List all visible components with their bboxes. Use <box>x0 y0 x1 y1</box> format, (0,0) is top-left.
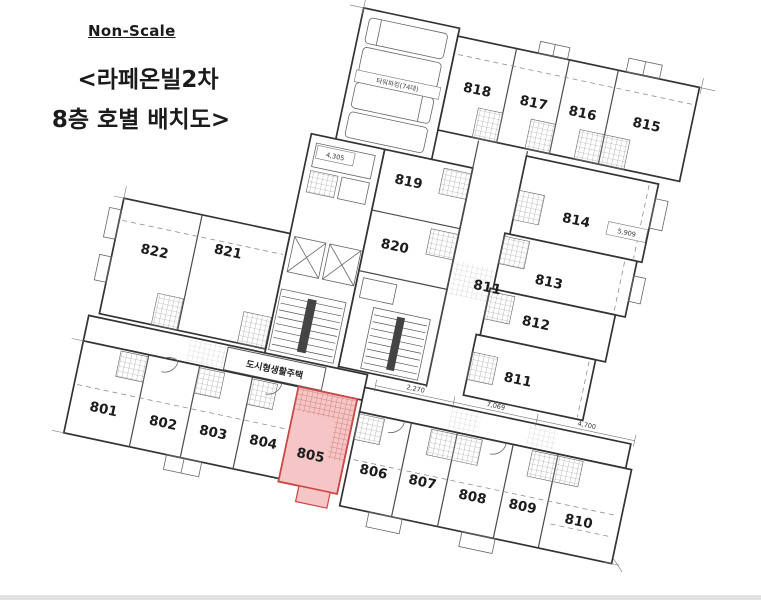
bathroom-tile <box>552 456 583 487</box>
bathroom-tile <box>194 368 225 399</box>
bathroom-tile <box>354 414 385 445</box>
bathroom-tile <box>499 236 530 269</box>
svg-text:4,700: 4,700 <box>577 420 597 432</box>
top-wing-units: 818 817 816 815 <box>438 22 702 181</box>
building-title: <라페온빌2차 <box>58 60 238 94</box>
bathroom-tile <box>467 352 498 385</box>
bathroom-tile <box>247 379 278 410</box>
non-scale-note: Non-Scale <box>88 22 238 40</box>
bathroom-tile <box>116 351 149 382</box>
parking-tower: 타워파킹(74대) <box>335 8 459 161</box>
bottom-right-slab: 806 807 808 809 810 <box>337 387 637 578</box>
scan-edge <box>0 595 761 600</box>
floor-subtitle: 8층 호별 배치도> <box>44 100 238 134</box>
bathroom-tile <box>452 435 483 466</box>
right-column-units: 814 813 812 811 811 <box>451 151 672 429</box>
title-block: Non-Scale <라페온빌2차 8층 호별 배치도> <box>58 22 238 134</box>
